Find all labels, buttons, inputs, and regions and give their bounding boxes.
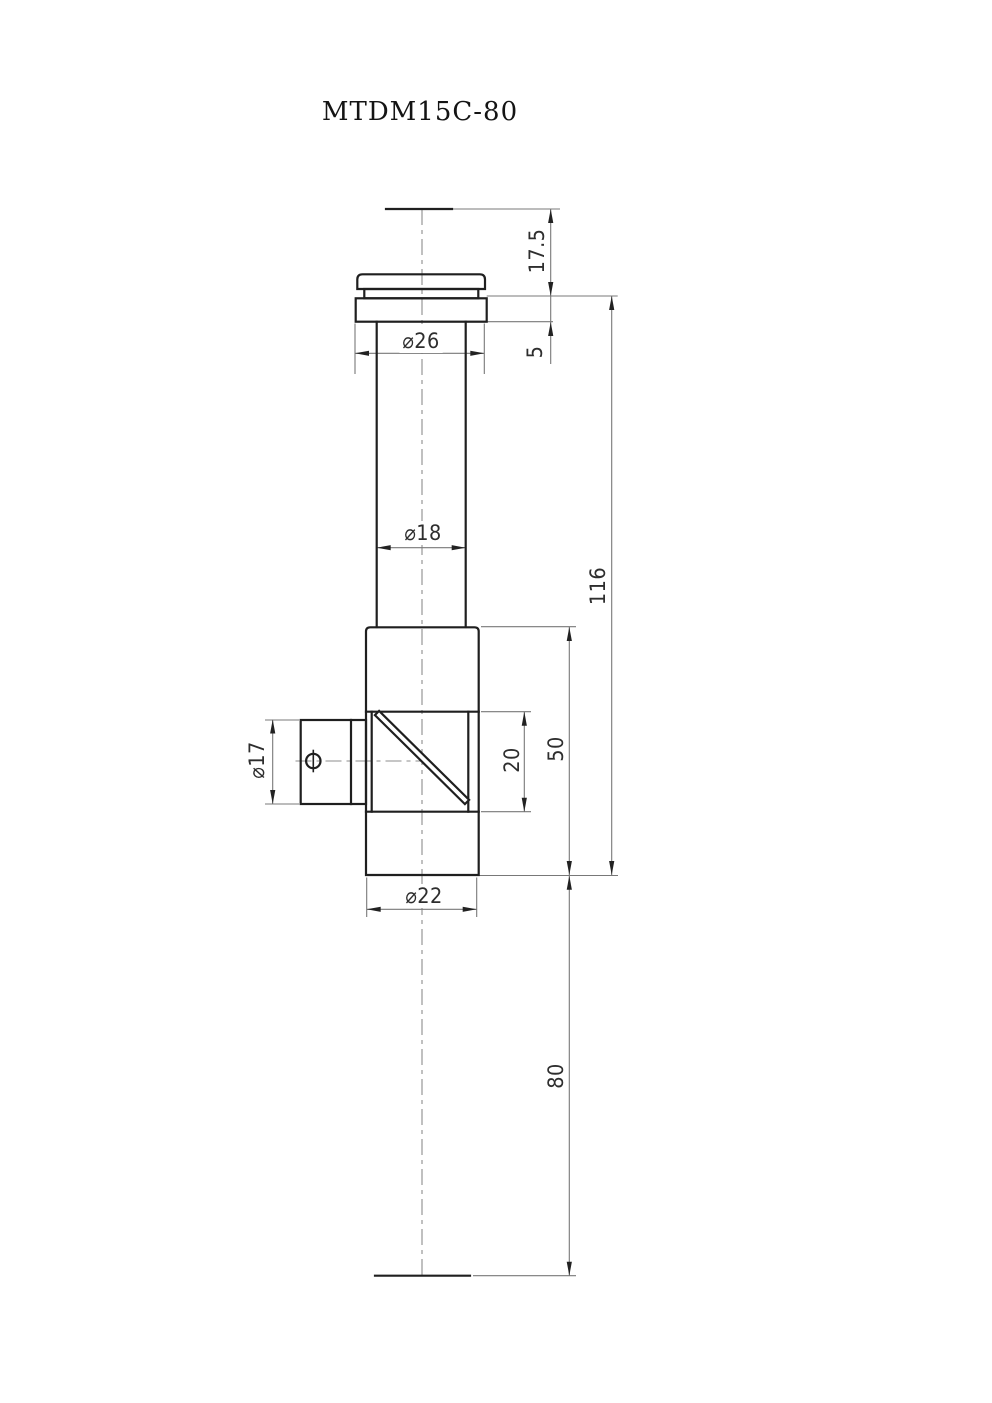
dim-5-label: 5: [523, 346, 547, 359]
dim-20-label: 20: [500, 747, 524, 773]
dim-phi26-label: ⌀26: [399, 329, 442, 353]
dim-17-5-label: 17.5: [525, 229, 549, 274]
dim-phi22-label: ⌀22: [402, 884, 445, 908]
drawing-geometry: [0, 0, 992, 1403]
dim-80-label: 80: [544, 1063, 568, 1089]
dim-phi18-label: ⌀18: [401, 521, 444, 545]
top-cap: [357, 274, 485, 289]
side-port: [301, 720, 366, 804]
cap-ring: [364, 289, 478, 298]
technical-drawing: MTDM15C-80 17.5 5 ⌀26 ⌀18 116 ⌀17 20 50 …: [0, 0, 992, 1403]
dim-50-label: 50: [544, 736, 568, 762]
part-number-title: MTDM15C-80: [322, 97, 518, 127]
part-outline: [301, 209, 487, 1276]
dim-phi17-label: ⌀17: [245, 741, 269, 779]
flange: [356, 298, 487, 321]
dim-116-label: 116: [586, 567, 610, 605]
